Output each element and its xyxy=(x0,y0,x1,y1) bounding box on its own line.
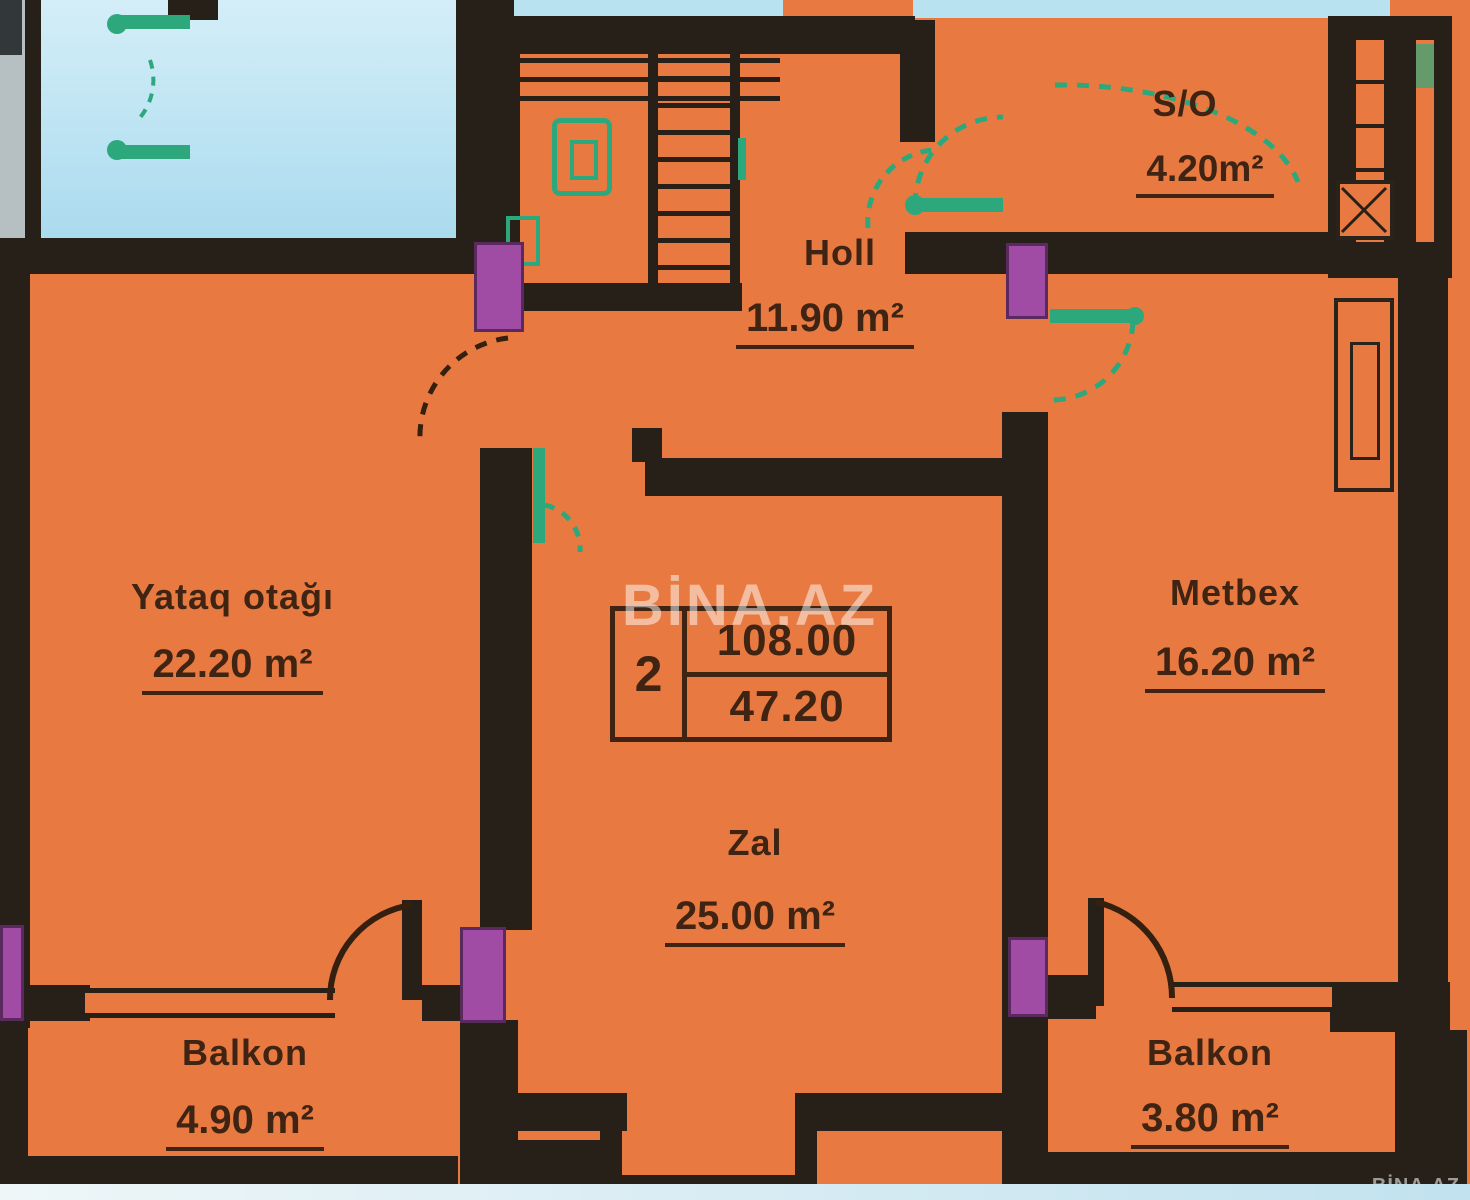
living-area: 47.20 xyxy=(687,677,887,738)
wall xyxy=(1395,1030,1467,1192)
wall xyxy=(25,0,41,245)
purple-wall-block xyxy=(460,927,506,1023)
living-name: Zal xyxy=(727,822,782,864)
room-area-living: 25.00 m² xyxy=(610,892,900,948)
elevator-fixture-inner xyxy=(570,140,598,180)
balcony-right-name: Balkon xyxy=(1147,1032,1273,1074)
staircase xyxy=(658,54,730,286)
room-label-balcony-right: Balkon xyxy=(1060,1028,1360,1078)
wall xyxy=(497,1093,627,1131)
wall xyxy=(1330,982,1450,1032)
sanitary-area: 4.20m² xyxy=(1136,148,1273,198)
kitchen-area: 16.20 m² xyxy=(1145,640,1325,693)
purple-wall-block xyxy=(1006,243,1048,319)
bottom-edge-strip xyxy=(0,1184,1470,1200)
wall xyxy=(456,0,514,250)
purple-wall-block xyxy=(1008,937,1048,1017)
room-area-kitchen: 16.20 m² xyxy=(1080,638,1390,694)
room-label-sanitary: S/O xyxy=(1095,80,1275,128)
kitchen-counter-inner xyxy=(1350,342,1380,460)
hall-area: 11.90 m² xyxy=(736,296,914,349)
bedroom-name: Yataq otağı xyxy=(131,576,334,618)
wall xyxy=(900,20,935,142)
wall xyxy=(168,0,218,20)
room-area-balcony-right: 3.80 m² xyxy=(1060,1094,1360,1150)
top-strip-so xyxy=(913,0,1333,18)
room-label-bedroom: Yataq otağı xyxy=(60,572,405,622)
kitchen-name: Metbex xyxy=(1170,572,1300,614)
door-jamb-mark xyxy=(533,448,545,543)
bedroom-balcony-window xyxy=(85,988,335,1018)
room-area-bedroom: 22.20 m² xyxy=(60,640,405,696)
left-edge-dark-corner xyxy=(0,0,22,55)
balcony-door-leaf xyxy=(402,900,422,1000)
wall xyxy=(632,428,662,462)
balcony-left-name: Balkon xyxy=(182,1032,308,1074)
hall-name: Holl xyxy=(804,232,876,274)
rail-mark xyxy=(738,138,746,180)
wall xyxy=(480,448,532,930)
room-label-kitchen: Metbex xyxy=(1080,568,1390,618)
top-strip-core xyxy=(513,0,783,16)
living-area: 25.00 m² xyxy=(665,894,845,947)
room-area-sanitary: 4.20m² xyxy=(1105,146,1305,200)
room-label-balcony-left: Balkon xyxy=(80,1028,410,1078)
vent-box xyxy=(1336,180,1394,240)
wall xyxy=(1002,412,1048,1192)
shaft-vent-mark xyxy=(1416,44,1434,88)
neighbor-apartment-area xyxy=(25,0,460,238)
wall xyxy=(1398,276,1448,1038)
wall xyxy=(645,458,1007,496)
wall xyxy=(0,238,520,274)
room-label-living: Zal xyxy=(640,818,870,868)
floor-plan: Yataq otağı 22.20 m² Holl 11.90 m² S/O 4… xyxy=(0,0,1470,1200)
purple-wall-block xyxy=(474,242,524,332)
balcony-door-leaf xyxy=(1088,898,1104,1006)
watermark-large: BİNA.AZ xyxy=(600,572,900,638)
wall xyxy=(795,1093,1048,1131)
room-area-hall: 11.90 m² xyxy=(700,294,950,350)
room-label-hall: Holl xyxy=(740,228,940,278)
bedroom-area: 22.20 m² xyxy=(142,642,322,695)
wall xyxy=(905,232,1355,274)
balcony-left-area: 4.90 m² xyxy=(166,1098,324,1151)
kitchen-balcony-window xyxy=(1172,982,1332,1012)
purple-wall-block xyxy=(0,925,24,1021)
room-area-balcony-left: 4.90 m² xyxy=(80,1096,410,1152)
wall xyxy=(0,238,30,1028)
balcony-right-area: 3.80 m² xyxy=(1131,1096,1289,1149)
wardrobe-lines xyxy=(518,58,780,114)
wall xyxy=(513,16,915,54)
sanitary-name: S/O xyxy=(1152,83,1217,125)
